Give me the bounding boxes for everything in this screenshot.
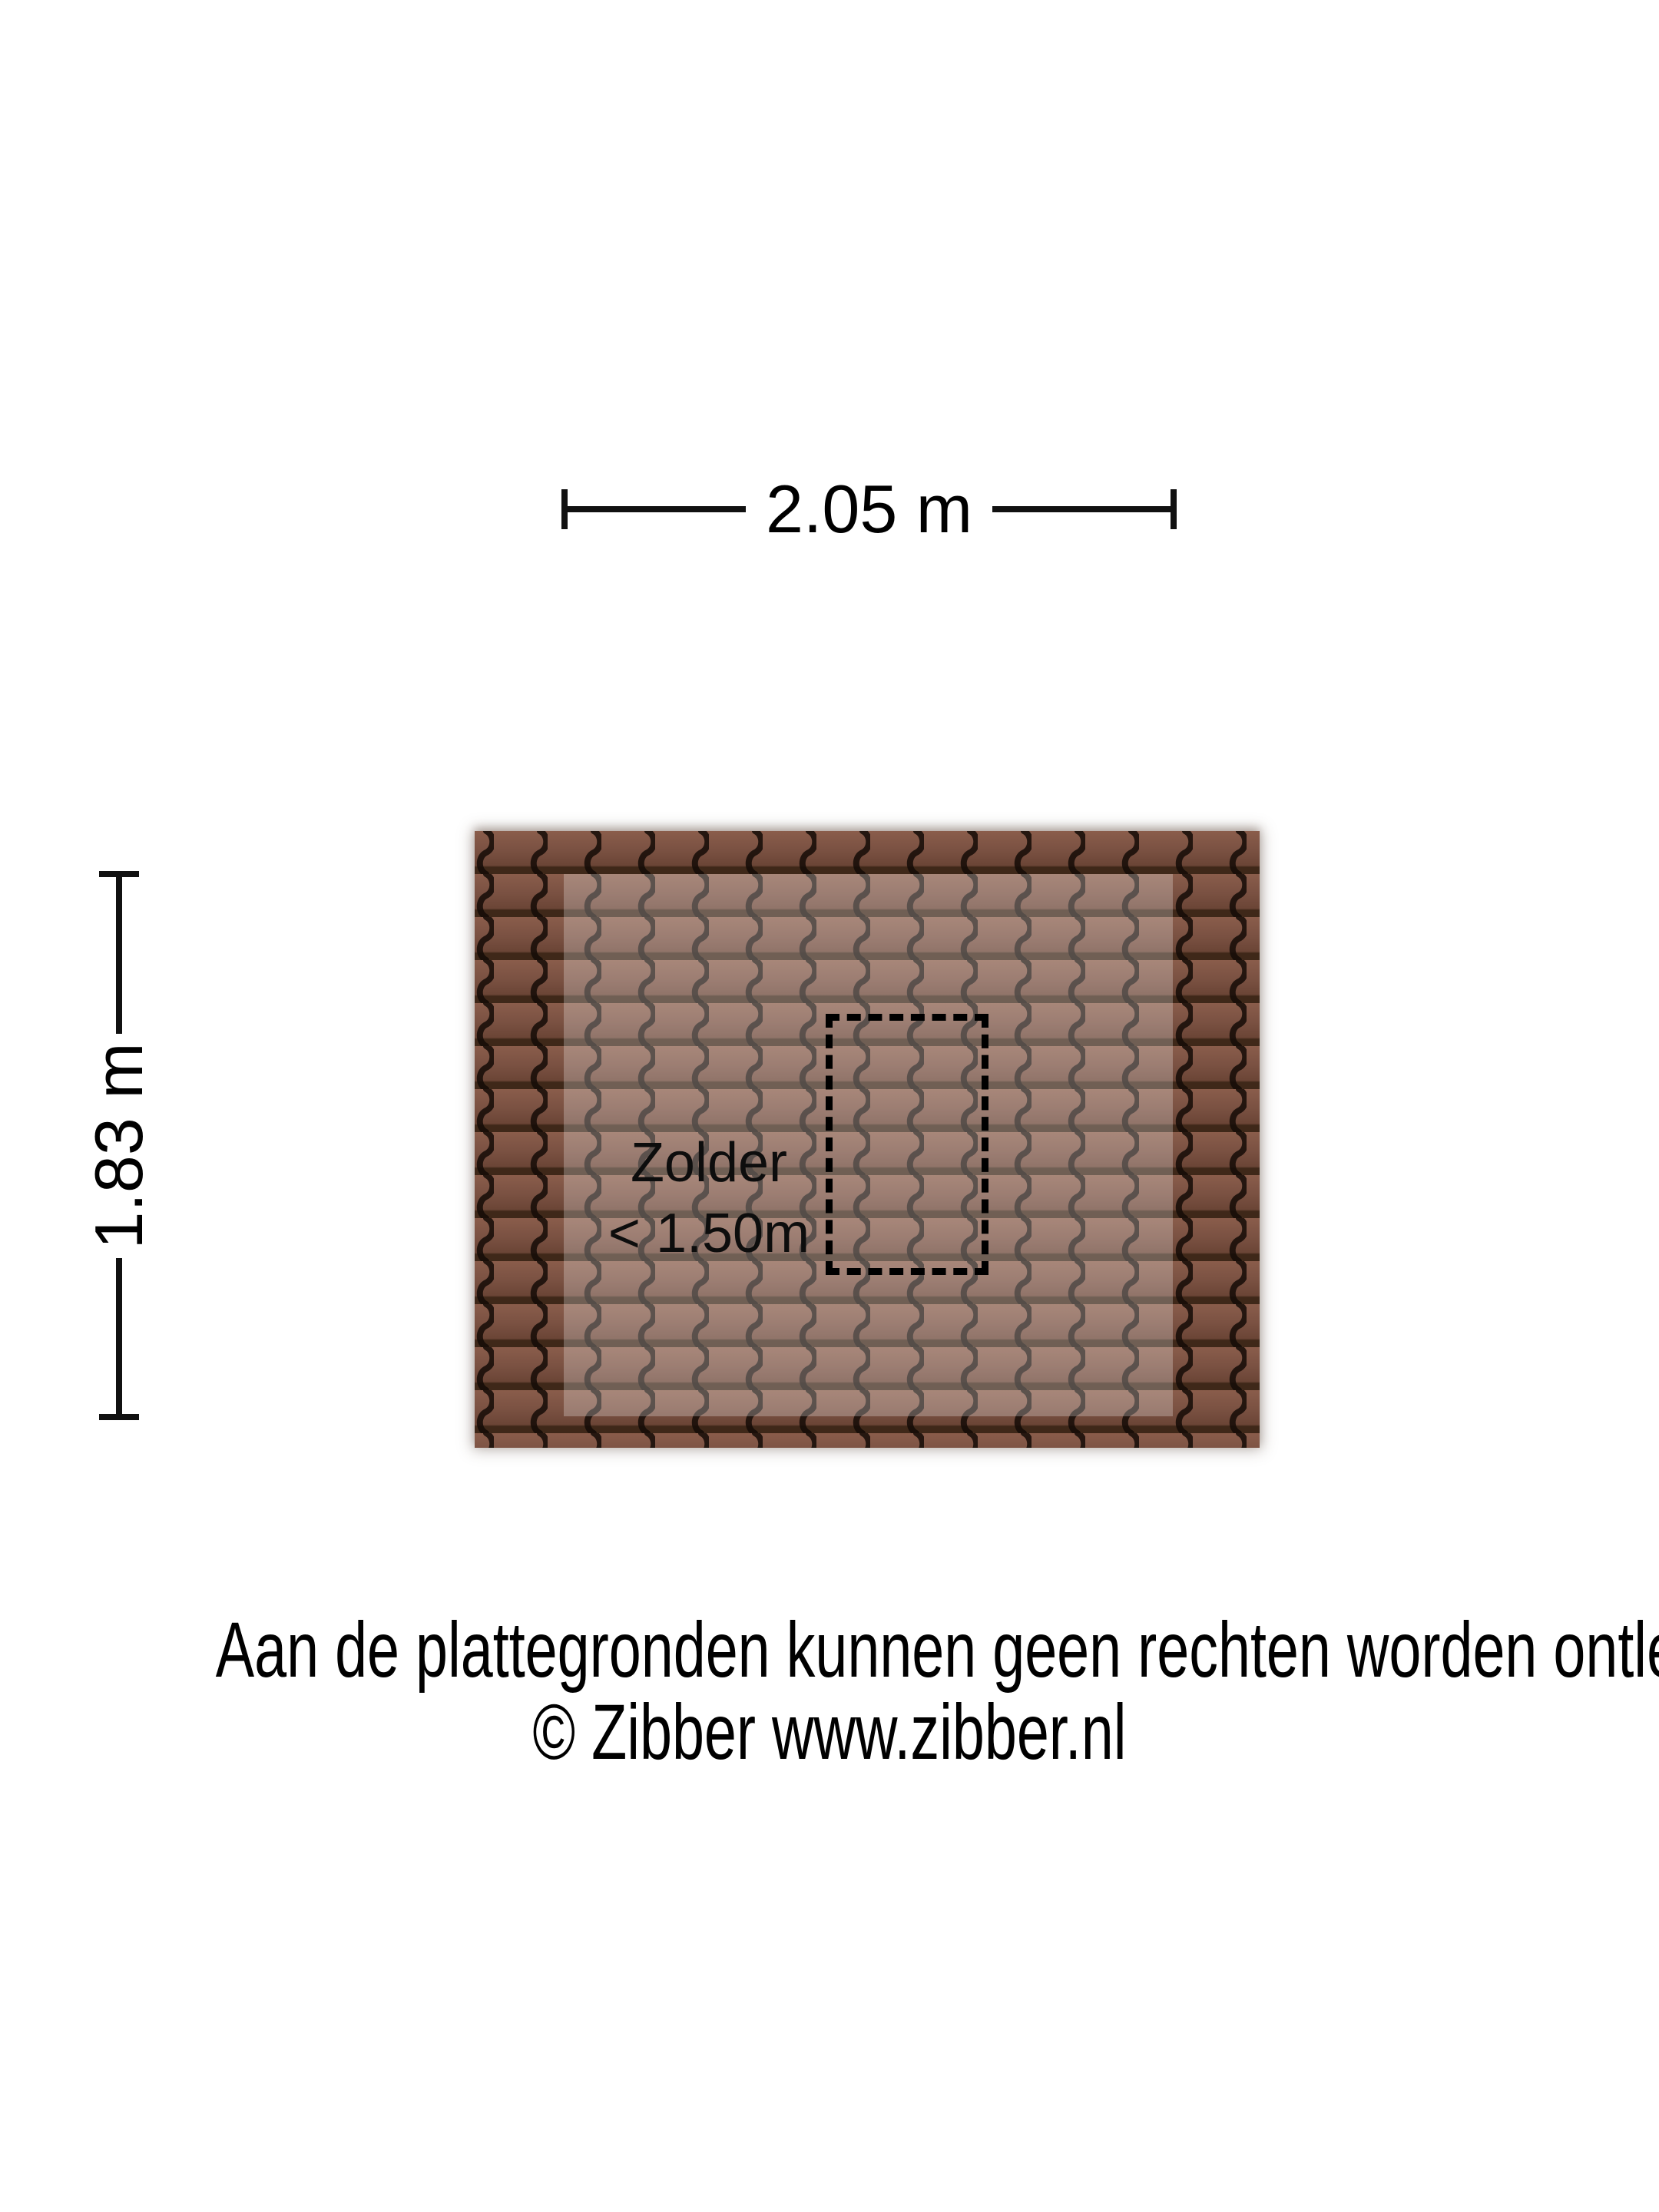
disclaimer-line: Aan de plattegronden kunnen geen rechten… bbox=[216, 1609, 1443, 1691]
dimension-height-label-wrap: 1.83 m bbox=[99, 1034, 139, 1258]
dimension-tick-top bbox=[99, 871, 139, 877]
room-name: Zolder bbox=[578, 1128, 839, 1198]
dimension-line-segment bbox=[992, 506, 1171, 512]
copyright-line: © Zibber www.zibber.nl bbox=[216, 1691, 1443, 1773]
dimension-width-label: 2.05 m bbox=[766, 475, 972, 543]
footer-disclaimer: Aan de plattegronden kunnen geen rechten… bbox=[216, 1609, 1443, 1773]
room-height-note: < 1.50m bbox=[578, 1198, 839, 1269]
dimension-line-segment bbox=[568, 506, 746, 512]
dimension-height-label: 1.83 m bbox=[85, 1042, 153, 1249]
floorplan-room-zolder: Zolder < 1.50m bbox=[475, 831, 1260, 1448]
dimension-tick-bottom bbox=[99, 1414, 139, 1420]
floorplan-page: 2.05 m 1.83 m bbox=[0, 0, 1659, 2212]
roof-window-dashed-outline bbox=[826, 1014, 988, 1275]
dimension-vertical: 1.83 m bbox=[99, 871, 139, 1420]
dimension-tick-left bbox=[561, 489, 568, 529]
dimension-line-segment bbox=[116, 1258, 122, 1415]
room-label: Zolder < 1.50m bbox=[578, 1128, 839, 1269]
dimension-line-segment bbox=[116, 877, 122, 1034]
dimension-tick-right bbox=[1171, 489, 1177, 529]
dimension-horizontal: 2.05 m bbox=[561, 489, 1177, 529]
